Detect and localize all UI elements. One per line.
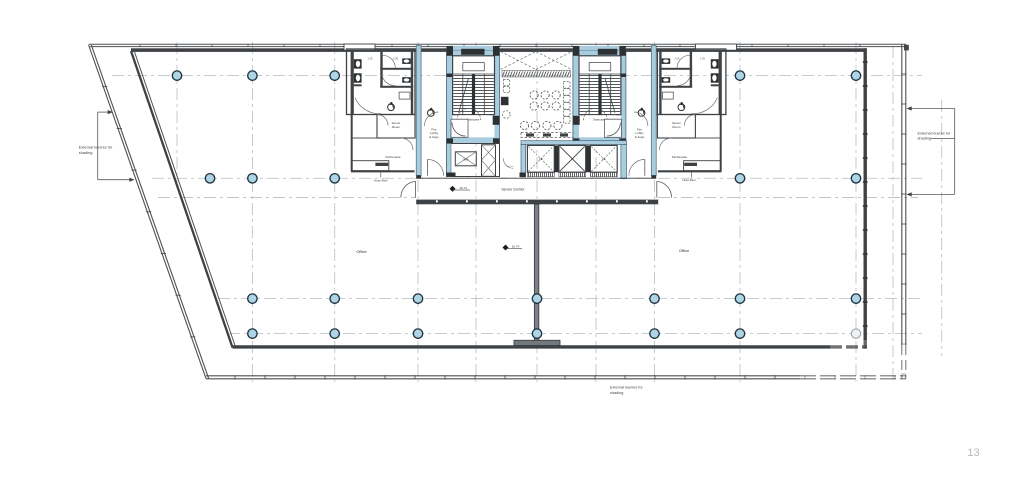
svg-text:2.06: 2.06 [393,57,399,61]
svg-text:2.06: 2.06 [674,57,680,61]
svg-text:& Asgn: & Asgn [635,135,645,139]
svg-text:1.35: 1.35 [367,57,373,61]
svg-text:Room: Room [672,125,681,129]
svg-text:Kitchenette: Kitchenette [385,155,400,159]
svg-text:Staircase: Staircase [467,118,480,122]
svg-text:Service Corridor: Service Corridor [501,188,525,192]
svg-text:13: 13 [967,447,979,459]
svg-text:External louvres for: External louvres for [79,145,113,150]
svg-text:External louvres for: External louvres for [610,386,643,390]
svg-text:Hose Reel: Hose Reel [682,178,695,182]
svg-text:Office: Office [356,249,367,254]
svg-text:shading: shading [918,137,931,141]
svg-text:16.74: 16.74 [459,186,467,190]
svg-text:1.35: 1.35 [700,57,706,61]
svg-text:Kitchenette: Kitchenette [672,155,687,159]
svg-text:shading: shading [79,150,93,155]
svg-text:External louvres for: External louvres for [918,131,951,135]
svg-text:Office: Office [679,248,690,253]
svg-text:& Asgn: & Asgn [429,135,439,139]
svg-text:shading: shading [610,391,623,395]
svg-text:16.74: 16.74 [512,245,520,249]
svg-text:Hose Reel: Hose Reel [374,179,387,183]
svg-text:Room: Room [392,125,401,129]
svg-text:LB: LB [539,157,543,161]
svg-text:SK6: SK6 [463,157,469,161]
svg-text:LB: LB [602,157,606,161]
